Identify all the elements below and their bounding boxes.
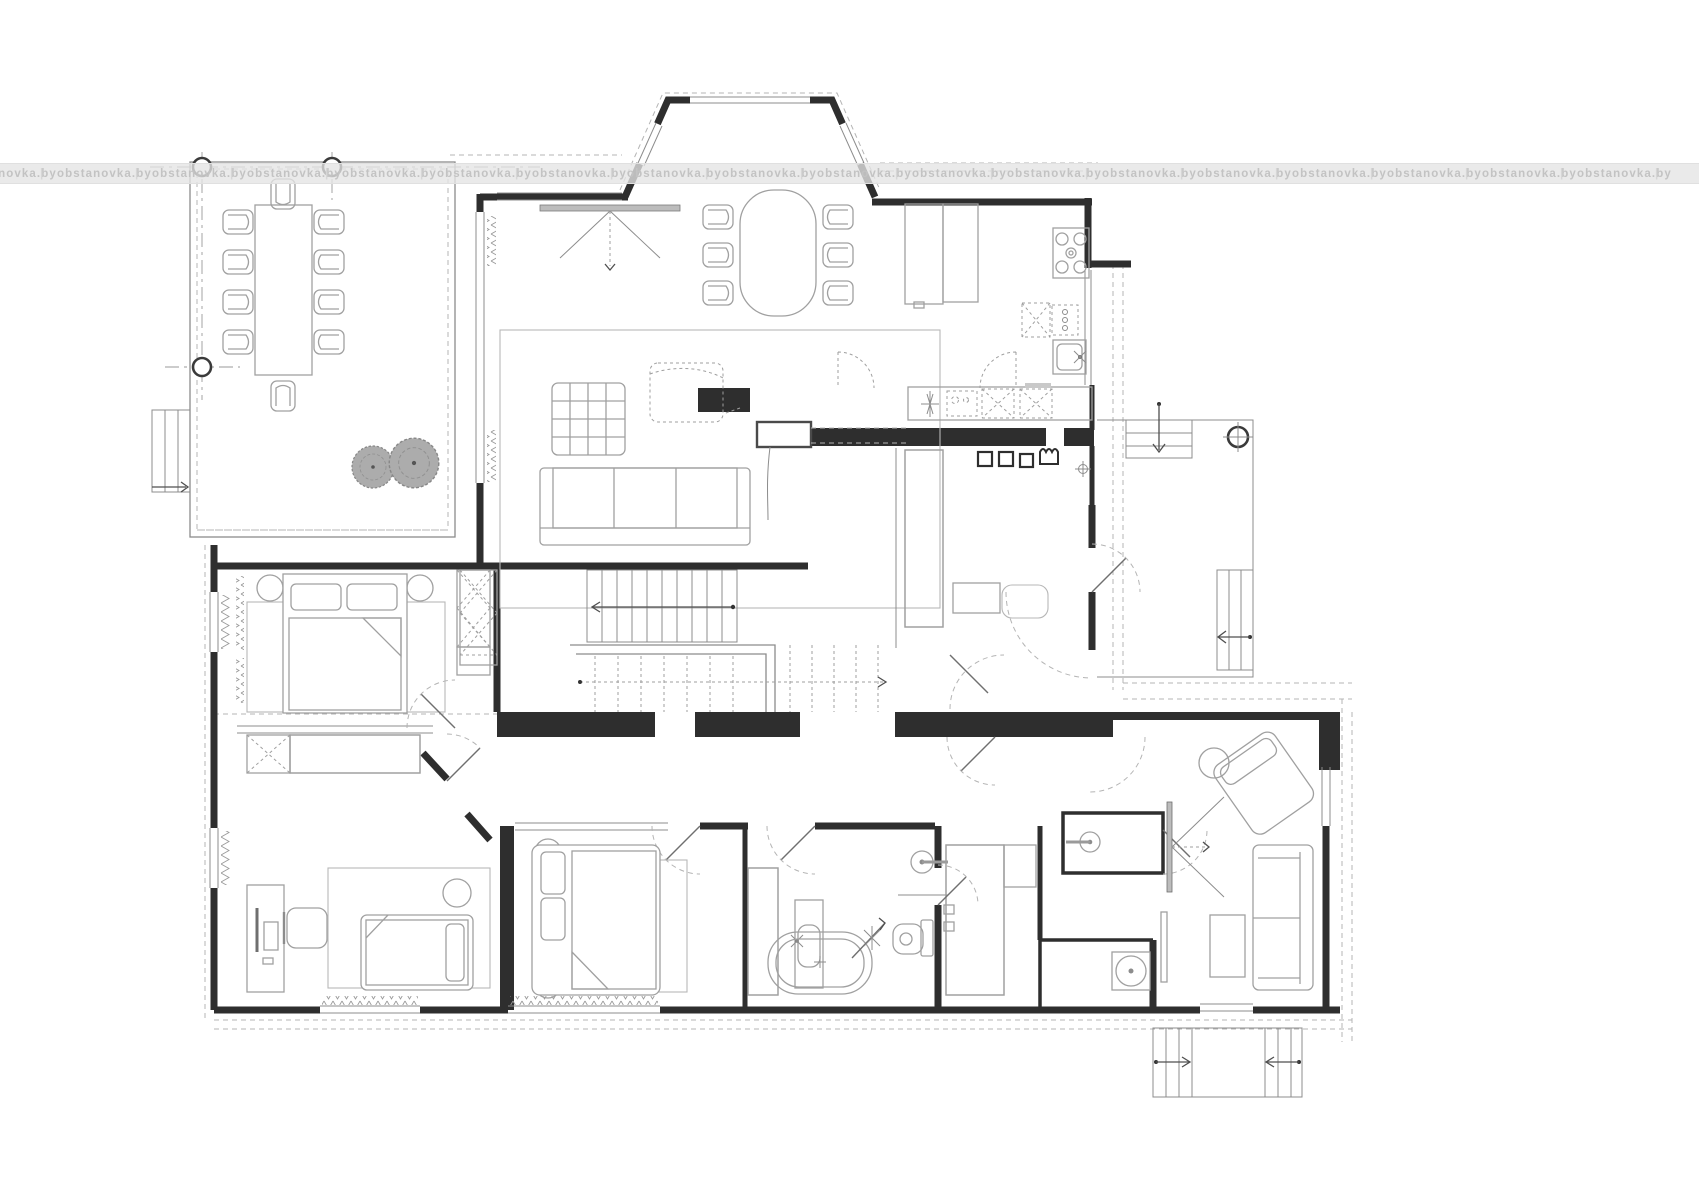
entrance-porch (1097, 402, 1253, 677)
wall-shelf (1161, 912, 1167, 982)
watermark-separator: | (895, 168, 899, 180)
watermark-separator: | (1275, 168, 1279, 180)
master-bed (283, 574, 407, 713)
cooktop-icon (1053, 228, 1089, 278)
desk-chair (284, 908, 327, 948)
ceiling-light-icon (1075, 461, 1091, 477)
hall-bench (953, 583, 1000, 613)
kitchen-counter (908, 383, 1092, 420)
kids-room (247, 734, 490, 992)
terrace-steps (152, 410, 190, 492)
terrace-dining-table (223, 179, 344, 411)
watermark-separator: | (610, 168, 614, 180)
watermark-separator: | (1370, 168, 1374, 180)
staircase (460, 570, 886, 712)
wall-tv-icon (1167, 797, 1224, 897)
single-bed (361, 915, 473, 990)
watermark-separator: | (230, 168, 234, 180)
sauna-bench (946, 845, 1004, 995)
terrace (152, 158, 455, 537)
kitchen-sink-icon (1053, 340, 1086, 374)
watermark-separator: | (1560, 168, 1564, 180)
master-bedroom (236, 570, 490, 733)
dining-area (703, 190, 853, 316)
entry-hall (896, 448, 1140, 709)
coffee-table (552, 383, 625, 455)
watermark-separator: | (515, 168, 519, 180)
porch-steps-top (1126, 402, 1192, 458)
pouf (443, 879, 471, 907)
porch-steps-side (1217, 570, 1253, 670)
watermark-separator: | (1655, 168, 1659, 180)
heater-room (1112, 952, 1150, 990)
watermark-separator: | (1465, 168, 1469, 180)
dining-table (740, 190, 816, 316)
lounge-coffee-table (1210, 915, 1245, 977)
shower-room (1066, 830, 1207, 874)
tv-console (540, 205, 680, 211)
watermark-separator: | (800, 168, 804, 180)
floor-plan-page: obstanovka.by|obstanovka.by|obstanovka.b… (0, 0, 1699, 1200)
desk (247, 885, 284, 992)
watermark-separator: | (40, 168, 44, 180)
wall-switches (978, 449, 1058, 467)
washbasin-icon (791, 900, 823, 988)
watermark-text: obstanovka.by (0, 168, 57, 180)
tall-cabinet (905, 204, 943, 304)
bedroom-2 (515, 823, 700, 998)
watermark-separator: | (135, 168, 139, 180)
curtain-icon (487, 216, 496, 266)
porch-column (1223, 422, 1253, 452)
watermark-separator: | (990, 168, 994, 180)
corridor-doors (947, 737, 1145, 792)
lounge-sofa (1253, 845, 1313, 990)
tree-icon (352, 438, 439, 488)
watermark-band: obstanovka.by|obstanovka.by|obstanovka.b… (0, 163, 1699, 184)
sauna (938, 845, 1036, 995)
sofa (540, 468, 750, 545)
closet-row (247, 735, 420, 773)
hall-wardrobe (905, 450, 943, 627)
nightstand (407, 575, 433, 601)
watermark-separator: | (1085, 168, 1089, 180)
watermark-separator: | (420, 168, 424, 180)
toilet-icon (893, 920, 933, 956)
lounge (1161, 728, 1317, 990)
linen-closet (748, 868, 778, 995)
watermark-separator: | (1180, 168, 1184, 180)
bedroom2-bed (532, 845, 660, 995)
tall-cabinet (943, 204, 978, 302)
curtain-icon (487, 430, 496, 482)
watermark-separator: | (325, 168, 329, 180)
garden-steps-south (1153, 1028, 1302, 1097)
bathroom (748, 826, 948, 995)
watermark-separator: | (705, 168, 709, 180)
nightstand (257, 575, 283, 601)
bathtub-icon (768, 918, 885, 994)
windows (210, 94, 1330, 1013)
chaise (1210, 728, 1317, 838)
